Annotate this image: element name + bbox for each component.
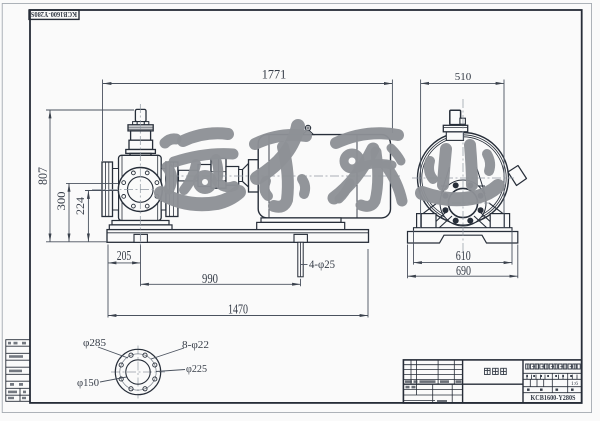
svg-text:KCB1600-Y280S: KCB1600-Y280S xyxy=(31,10,77,18)
svg-text:1:6: 1:6 xyxy=(571,381,578,387)
svg-text:300: 300 xyxy=(54,192,68,211)
svg-text:807: 807 xyxy=(36,167,50,185)
svg-text:4-φ25: 4-φ25 xyxy=(309,257,335,271)
svg-text:φ150: φ150 xyxy=(77,378,99,389)
svg-text:φ225: φ225 xyxy=(186,364,207,375)
svg-text:8-φ22: 8-φ22 xyxy=(182,340,209,351)
svg-text:690: 690 xyxy=(456,264,471,279)
svg-text:205: 205 xyxy=(117,249,132,264)
svg-text:990: 990 xyxy=(202,272,218,287)
svg-text:KCB1600-Y280S: KCB1600-Y280S xyxy=(531,393,576,402)
svg-text:224: 224 xyxy=(73,197,87,215)
svg-text:φ285: φ285 xyxy=(83,338,106,349)
svg-text:1771: 1771 xyxy=(262,68,287,82)
svg-text:1470: 1470 xyxy=(228,302,248,317)
svg-text:510: 510 xyxy=(455,71,472,83)
